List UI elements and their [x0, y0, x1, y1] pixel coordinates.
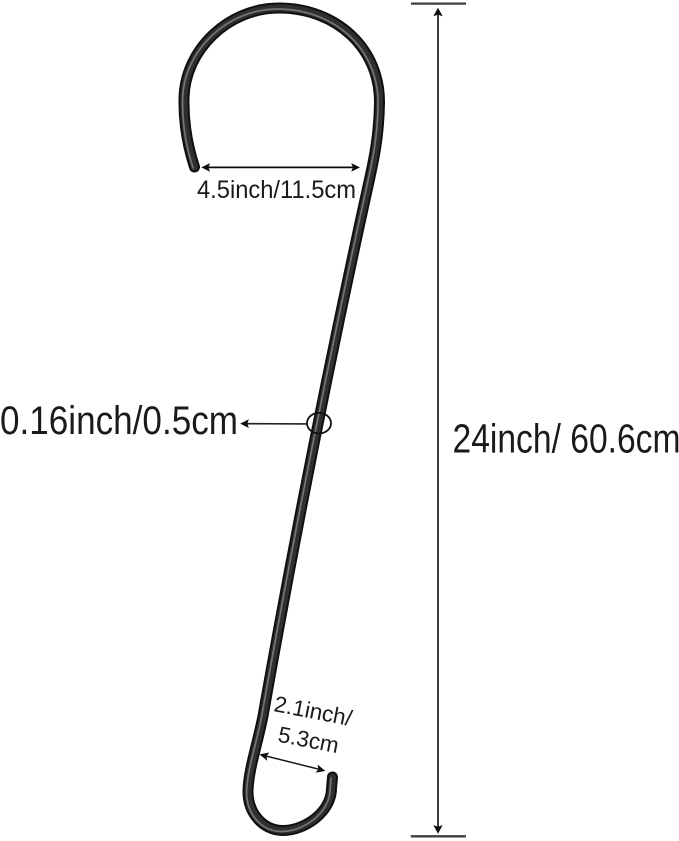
svg-text:24inch/ 60.6cm: 24inch/ 60.6cm: [453, 416, 679, 462]
svg-text:0.16inch/0.5cm: 0.16inch/0.5cm: [0, 399, 238, 443]
svg-text:4.5inch/11.5cm: 4.5inch/11.5cm: [197, 176, 356, 204]
